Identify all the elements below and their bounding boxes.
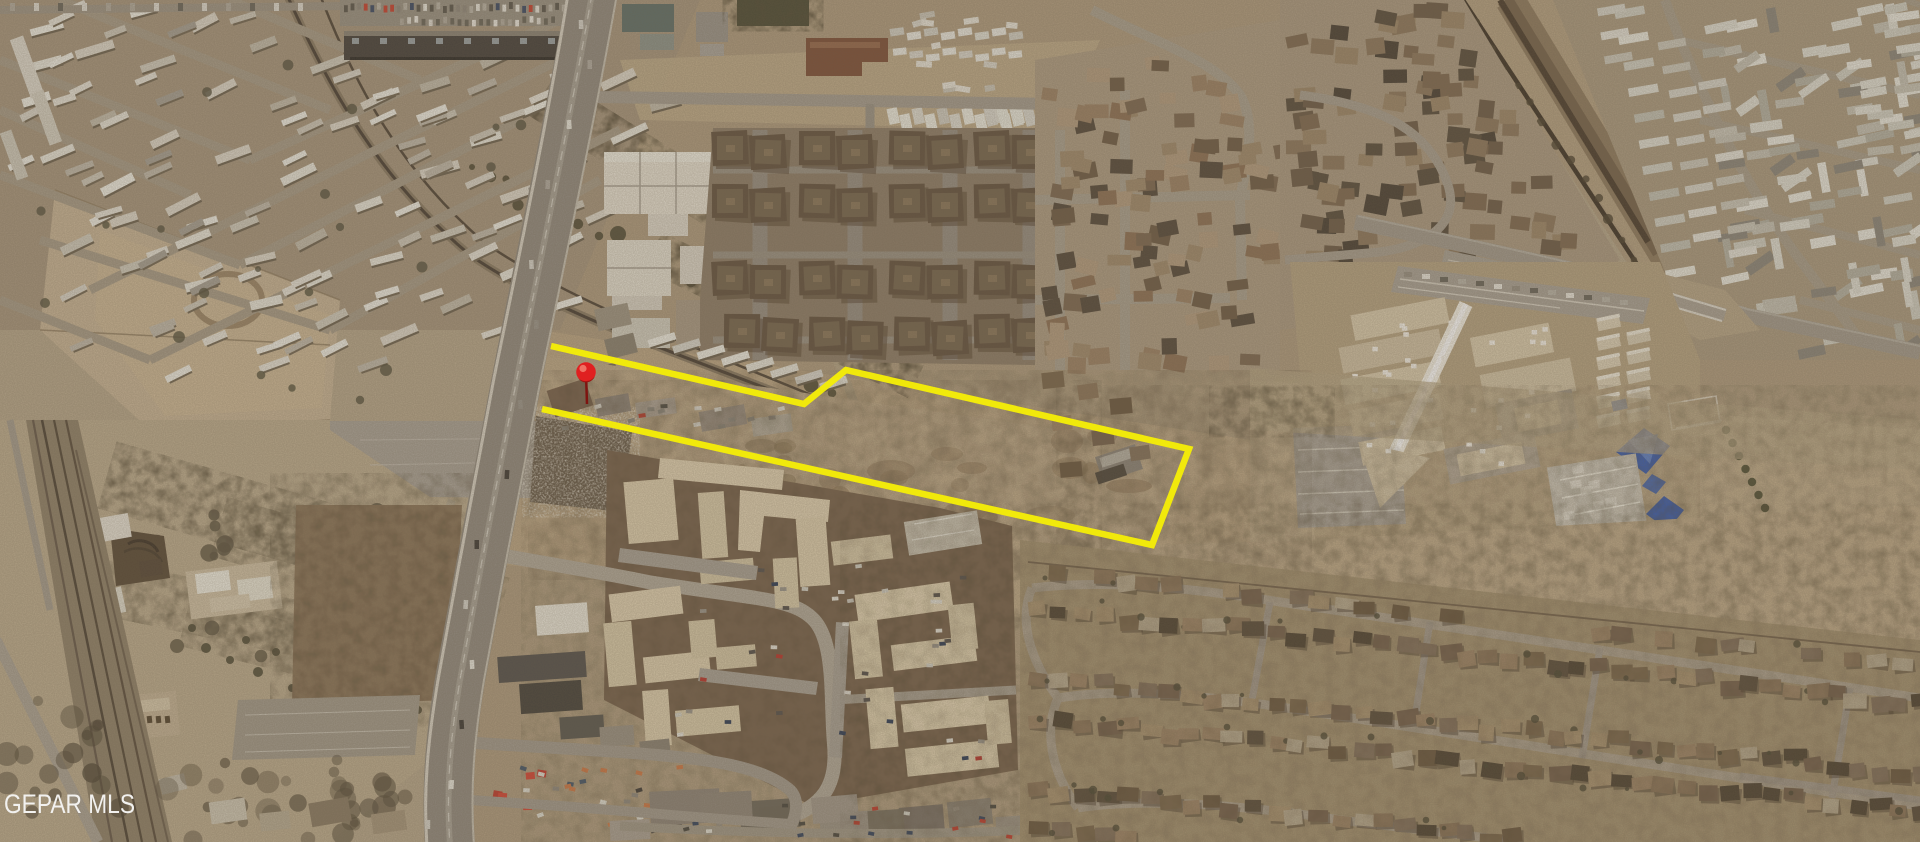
svg-text:GEPAR MLS: GEPAR MLS <box>4 789 135 819</box>
